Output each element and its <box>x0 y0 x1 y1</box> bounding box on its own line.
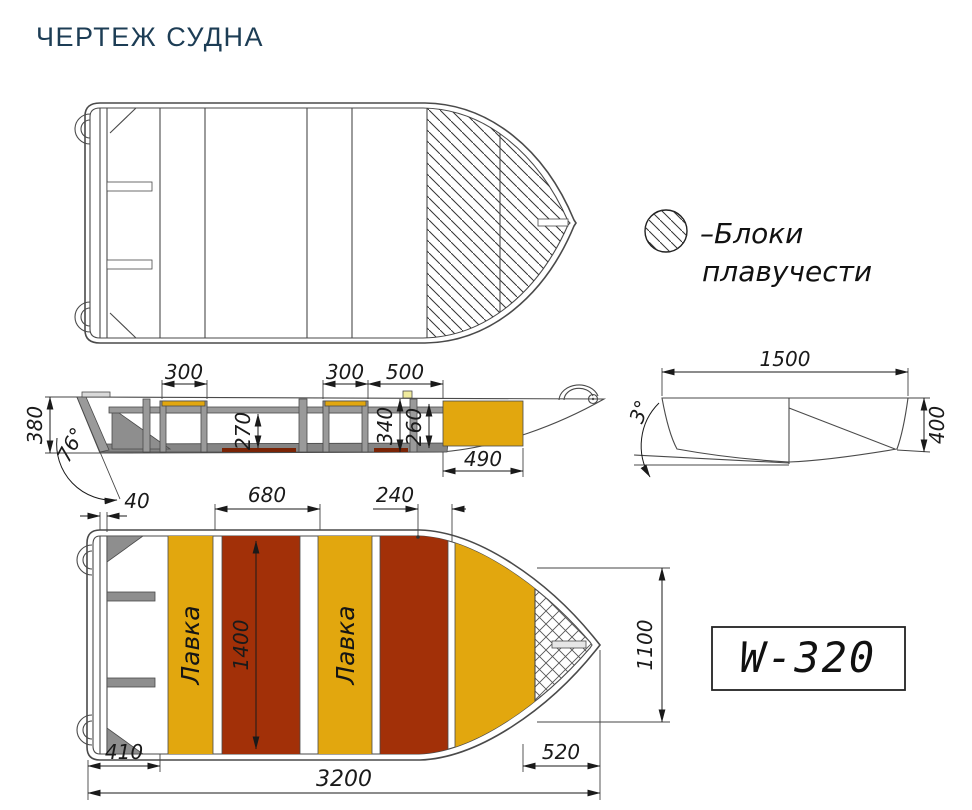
dim-340: 340 <box>373 407 397 445</box>
seat1-strip <box>162 401 205 406</box>
dim-40: 40 <box>124 489 149 513</box>
dim-260: 260 <box>402 408 426 446</box>
dim-680: 680 <box>248 483 286 507</box>
corner-gusset-top <box>107 536 143 562</box>
bottom-stringer-bottom <box>107 678 155 687</box>
bottom-handle-top-icon <box>77 545 92 575</box>
dim-1100: 1100 <box>633 620 657 671</box>
bench2-label: Лавка <box>331 605 360 685</box>
bow-box <box>443 401 523 446</box>
cross-section-view: 1500 3° 400 <box>624 347 949 477</box>
stringer-bottom <box>107 260 152 269</box>
dim-76deg: 76° <box>52 423 90 466</box>
dim-500: 500 <box>386 360 424 384</box>
dim-3200: 3200 <box>316 767 372 792</box>
model-label-box: W-320 <box>712 627 905 690</box>
legend: –Блоки плавучести <box>645 210 872 288</box>
legend-line1: –Блоки <box>700 217 803 250</box>
floor-strip2 <box>374 448 408 452</box>
page-title: ЧЕРТЕЖ СУДНА <box>36 22 264 52</box>
dim-410: 410 <box>105 740 143 764</box>
stern-handle-bottom-icon <box>75 302 90 332</box>
dim-1400: 1400 <box>229 620 253 671</box>
nav-light <box>403 391 412 398</box>
dim-270: 270 <box>231 412 255 450</box>
bottom-stringer-top <box>107 592 155 601</box>
side-view: 380 76° 300 300 500 270 340 260 <box>23 360 604 500</box>
boat-drawing-page: ЧЕРТЕЖ СУДНА –Блоки <box>0 0 972 810</box>
red-band2 <box>380 530 448 760</box>
side-bow-handle-icon <box>559 385 598 400</box>
dim-300b: 300 <box>326 360 364 384</box>
dim-1500: 1500 <box>760 347 811 371</box>
dim-380: 380 <box>23 406 47 444</box>
top-plan-view <box>75 103 577 343</box>
bottom-handle-bottom-icon <box>77 715 92 745</box>
legend-line2: плавучести <box>702 255 872 288</box>
dim-520: 520 <box>542 740 580 764</box>
bow-yellow-band <box>455 530 535 760</box>
dim-3deg: 3° <box>624 397 654 427</box>
cross-hull <box>662 398 908 462</box>
dim-300a: 300 <box>165 360 203 384</box>
boat-drawing: ЧЕРТЕЖ СУДНА –Блоки <box>0 0 972 810</box>
bow-handle <box>538 219 568 226</box>
model-label: W-320 <box>740 633 876 682</box>
bottom-plan-view: Лавка Лавка 1400 40 680 240 <box>77 483 670 800</box>
dim-400: 400 <box>925 406 949 444</box>
dim-490: 490 <box>464 447 502 471</box>
stern-handle-top-icon <box>75 114 90 144</box>
seat2-strip <box>325 401 366 406</box>
bottom-bow-handle <box>552 641 586 648</box>
stringer-top <box>107 182 152 191</box>
bench1-label: Лавка <box>176 605 205 685</box>
dim-240: 240 <box>376 483 414 507</box>
